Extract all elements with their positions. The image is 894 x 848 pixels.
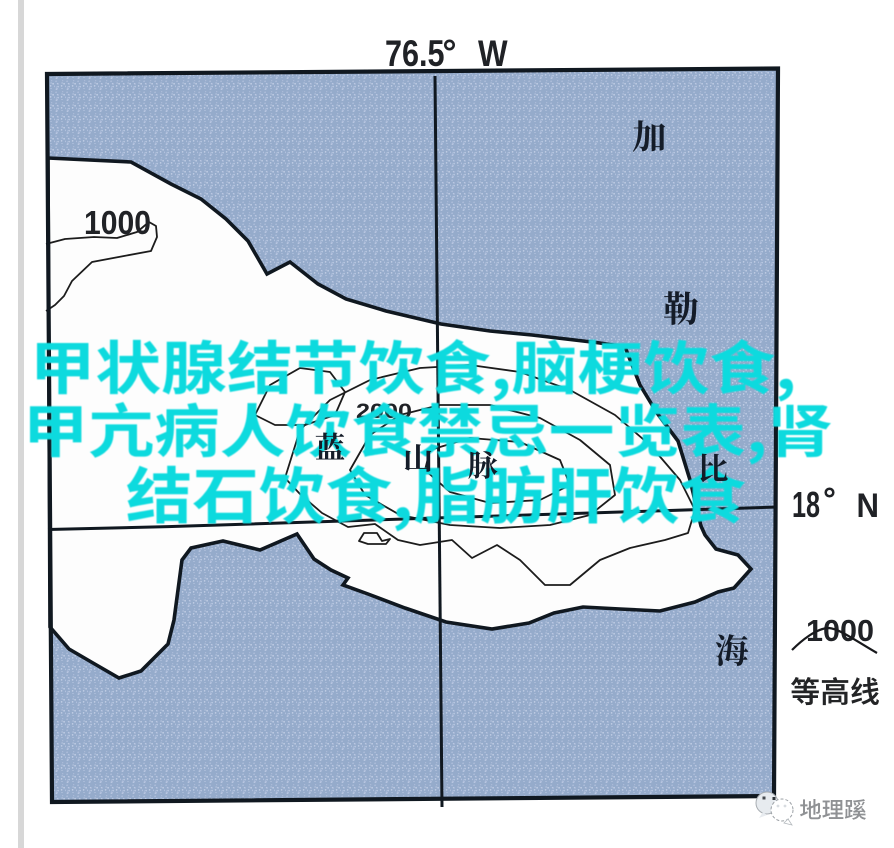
svg-text:1000: 1000 — [84, 204, 151, 241]
svg-text:18: 18 — [792, 484, 820, 525]
svg-text:W: W — [478, 33, 508, 74]
svg-text:N: N — [857, 487, 880, 525]
svg-text:76.5: 76.5 — [385, 33, 445, 74]
